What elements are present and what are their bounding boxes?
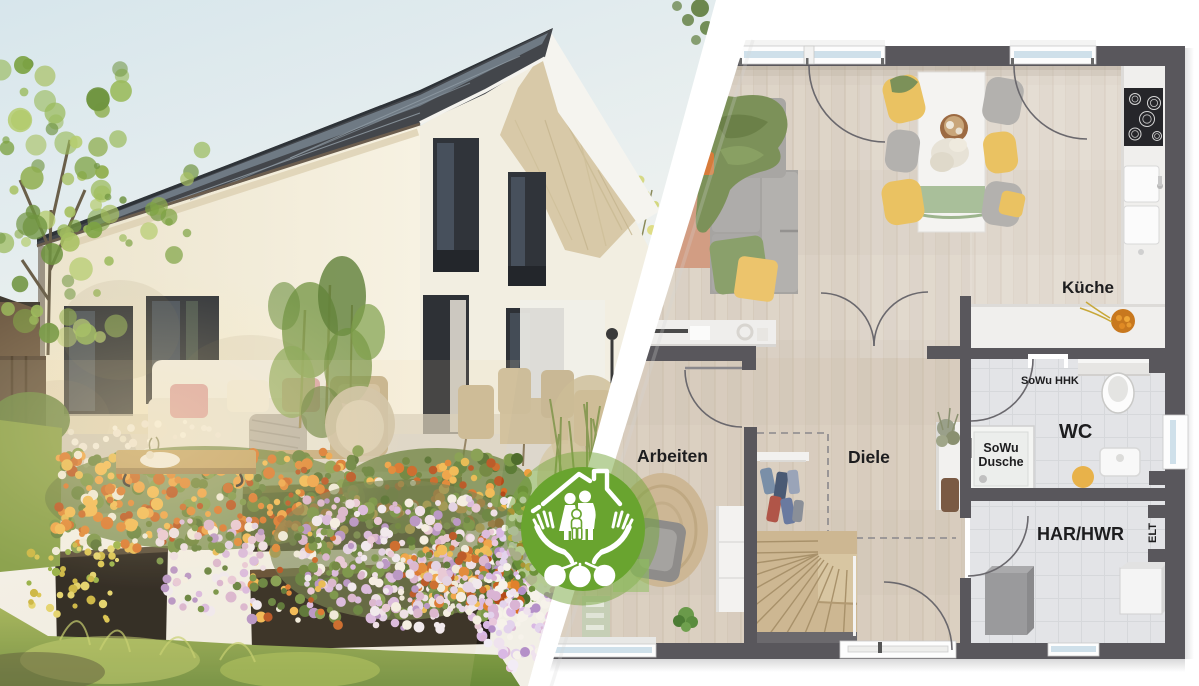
svg-text:SoWu: SoWu	[983, 441, 1018, 455]
svg-text:Dusche: Dusche	[978, 455, 1023, 469]
svg-text:Arbeiten: Arbeiten	[637, 446, 708, 466]
svg-text:SoWu HHK: SoWu HHK	[1021, 375, 1079, 387]
svg-text:Diele: Diele	[848, 447, 890, 467]
svg-text:Küche: Küche	[1062, 278, 1114, 297]
svg-text:HAR/HWR: HAR/HWR	[1037, 524, 1124, 544]
svg-text:ELT: ELT	[1147, 523, 1159, 543]
svg-text:WC: WC	[1059, 421, 1092, 443]
